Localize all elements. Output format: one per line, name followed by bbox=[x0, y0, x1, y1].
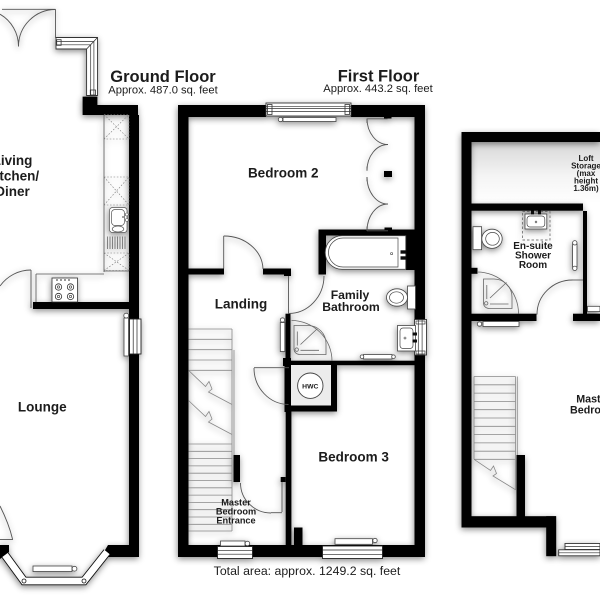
svg-text:Entrance: Entrance bbox=[216, 516, 255, 526]
svg-text:Bedroom: Bedroom bbox=[570, 404, 600, 416]
svg-text:Bedroom 3: Bedroom 3 bbox=[318, 449, 389, 464]
svg-text:Living: Living bbox=[0, 153, 32, 168]
svg-text:Approx. 487.0 sq. feet: Approx. 487.0 sq. feet bbox=[108, 85, 218, 97]
svg-text:Ground Floor: Ground Floor bbox=[110, 68, 216, 86]
svg-text:Lounge: Lounge bbox=[18, 400, 67, 415]
svg-text:Diner: Diner bbox=[0, 184, 30, 199]
svg-text:Room: Room bbox=[519, 260, 547, 271]
svg-text:Total area: approx. 1249.2 sq.: Total area: approx. 1249.2 sq. feet bbox=[214, 564, 401, 578]
svg-text:1.36m): 1.36m) bbox=[573, 184, 599, 193]
svg-text:Kitchen/: Kitchen/ bbox=[0, 169, 39, 184]
svg-text:Approx. 443.2 sq. feet: Approx. 443.2 sq. feet bbox=[323, 83, 433, 95]
svg-text:Bathroom: Bathroom bbox=[322, 300, 380, 314]
svg-text:Landing: Landing bbox=[215, 297, 268, 312]
svg-text:Bedroom 2: Bedroom 2 bbox=[248, 166, 319, 181]
svg-text:HWC: HWC bbox=[302, 384, 318, 391]
